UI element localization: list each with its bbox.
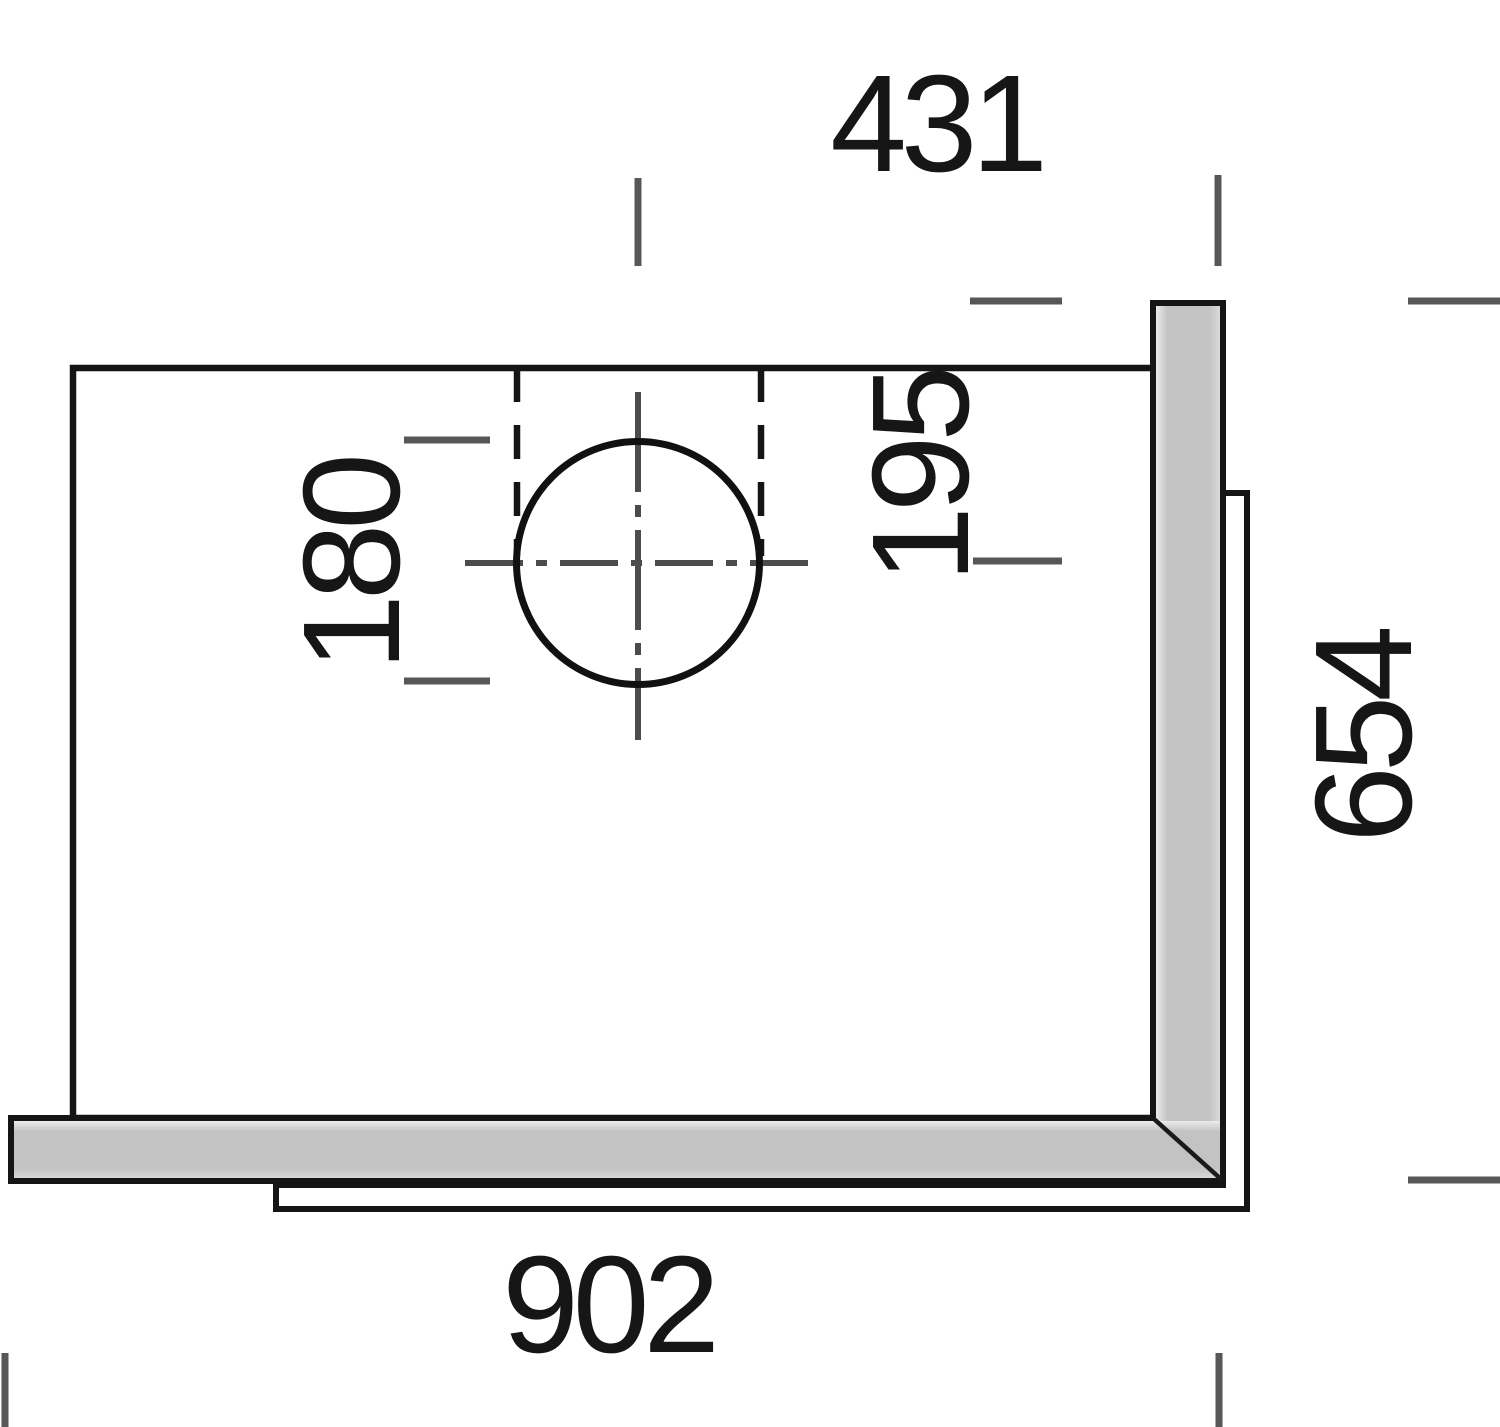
dim-195-label: 195 <box>841 327 1001 627</box>
drawing-canvas <box>0 0 1500 1427</box>
technical-drawing-page: 431 195 180 654 902 <box>0 0 1500 1427</box>
dim-902-label: 902 <box>458 1225 758 1385</box>
bottom-edge-strip-fill <box>14 1121 1220 1179</box>
dim-431-label: 431 <box>786 44 1086 204</box>
dim-654-label: 654 <box>1284 587 1444 887</box>
dim-180-label: 180 <box>272 415 432 715</box>
side-edge-strip-fill <box>1156 306 1220 1179</box>
